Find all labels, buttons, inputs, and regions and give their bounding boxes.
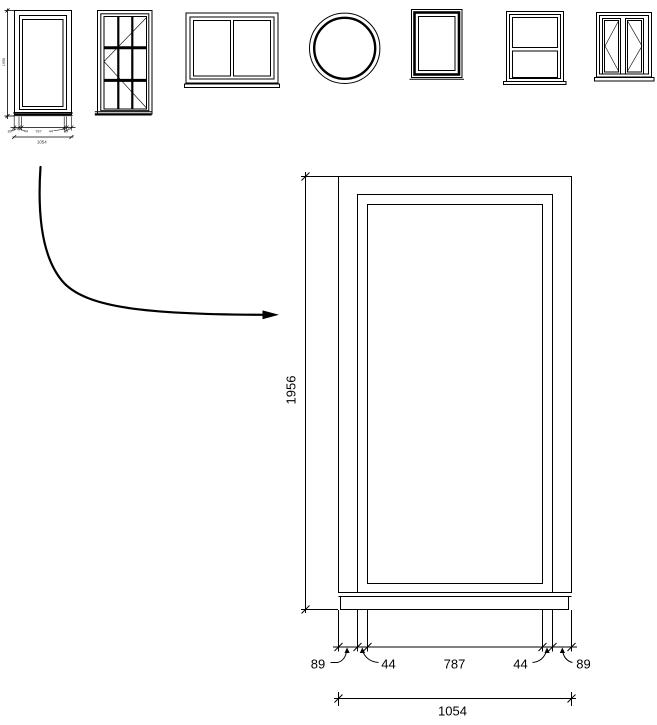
- dim-seg-2-label: 44: [381, 657, 395, 672]
- detail-sash-frame: [358, 195, 553, 593]
- dim-height-label: 1956: [284, 376, 299, 405]
- dim-seg-3-label: 787: [444, 657, 466, 672]
- arrowhead: [263, 310, 280, 319]
- mini-dim-total: 1054: [37, 139, 47, 144]
- mini-dim-seg-2: 44: [24, 130, 28, 134]
- dimension-total-width: 1054: [334, 692, 576, 719]
- drawing-sheet: 1956 89 44 787 44 89: [0, 0, 657, 725]
- thumbnail-fixed-window-icon: [410, 10, 465, 80]
- detail-glass-pane: [368, 205, 543, 584]
- mini-dim-seg-3: 787: [35, 130, 41, 134]
- thumbnail-round-window-icon: [310, 13, 380, 83]
- window-type-thumbnails: 1956 89 44 787 44 89: [2, 9, 654, 145]
- thumbnail-double-hung-icon: [504, 12, 567, 85]
- detail-sill: [341, 597, 569, 610]
- thumbnail-dimensioned-window-icon: 1956 89 44 787 44 89: [2, 9, 76, 145]
- mini-dim-seg-1: 89: [8, 130, 12, 134]
- detail-outer-frame: [339, 177, 572, 593]
- callout-arrow: [40, 167, 279, 319]
- thumbnail-grid-casement-icon: [95, 11, 152, 115]
- mini-dim-seg-4: 44: [49, 130, 53, 134]
- dim-seg-5-label: 89: [576, 657, 590, 672]
- thumbnail-double-casement-icon: [595, 13, 655, 82]
- thumbnail-slider-window-icon: [185, 13, 280, 88]
- window-detail-view: 1956 89 44: [284, 172, 591, 719]
- mini-dim-seg-5: 89: [64, 130, 68, 134]
- dim-seg-4-label: 44: [513, 657, 527, 672]
- dim-seg-1-label: 89: [311, 657, 325, 672]
- mini-dim-height: 1956: [2, 58, 6, 66]
- dim-total-label: 1054: [438, 704, 467, 719]
- dimension-width-segments: 89 44 787 44 89: [311, 610, 591, 672]
- cad-canvas: 1956 89 44 787 44 89: [0, 0, 657, 725]
- dimension-height: 1956: [284, 172, 339, 614]
